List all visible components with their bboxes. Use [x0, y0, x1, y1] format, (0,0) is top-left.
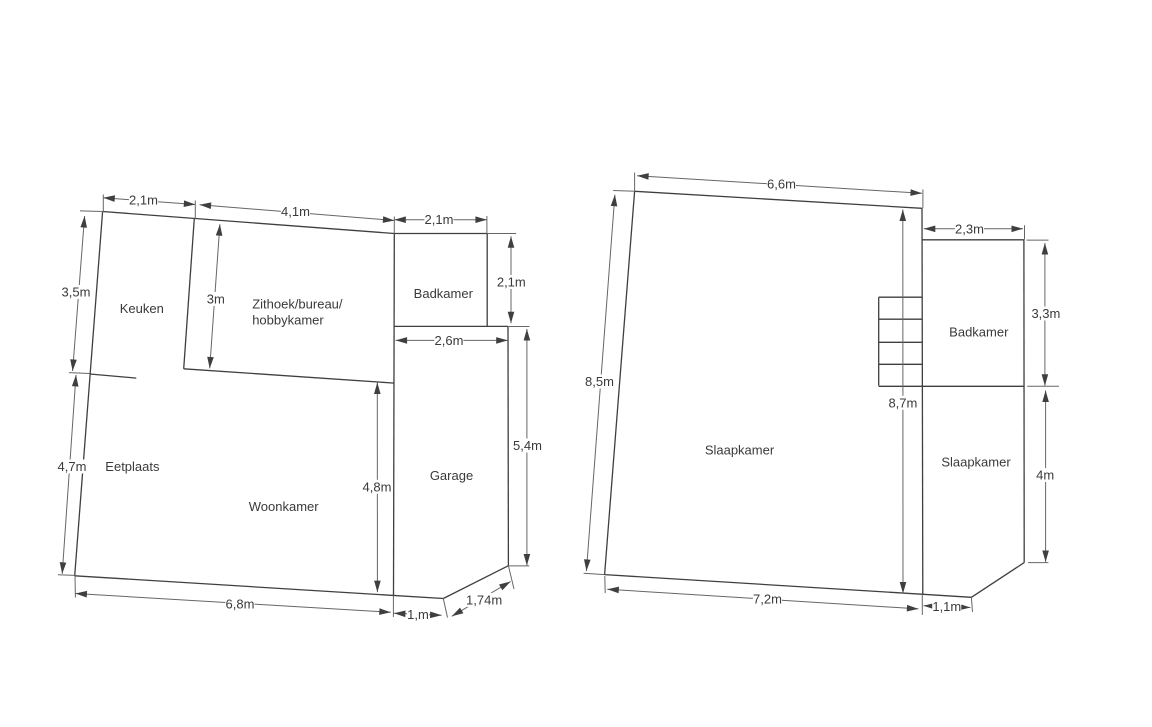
svg-text:Garage: Garage	[430, 468, 473, 483]
svg-text:4,1m: 4,1m	[281, 204, 310, 219]
svg-text:3m: 3m	[207, 292, 225, 307]
svg-text:1,74m: 1,74m	[466, 592, 502, 607]
svg-text:Slaapkamer: Slaapkamer	[941, 455, 1011, 470]
svg-text:4m: 4m	[1036, 468, 1054, 483]
svg-text:Slaapkamer: Slaapkamer	[705, 443, 775, 458]
svg-text:6,6m: 6,6m	[767, 177, 796, 192]
svg-text:Woonkamer: Woonkamer	[249, 499, 320, 514]
svg-text:Zithoek/bureau/: Zithoek/bureau/	[252, 297, 343, 312]
svg-text:8,7m: 8,7m	[888, 395, 917, 410]
svg-text:Eetplaats: Eetplaats	[105, 459, 160, 474]
svg-text:2,1m: 2,1m	[497, 275, 526, 290]
svg-text:2,1m: 2,1m	[129, 193, 158, 208]
svg-text:1,1m: 1,1m	[932, 599, 961, 614]
svg-text:hobbykamer: hobbykamer	[252, 313, 324, 328]
svg-text:Badkamer: Badkamer	[414, 286, 474, 301]
svg-text:7,2m: 7,2m	[753, 592, 782, 607]
svg-text:4,7m: 4,7m	[58, 459, 87, 474]
svg-text:8,5m: 8,5m	[585, 374, 614, 389]
svg-text:6,8m: 6,8m	[226, 596, 255, 611]
svg-text:2,3m: 2,3m	[955, 221, 984, 236]
svg-text:Keuken: Keuken	[120, 301, 164, 316]
svg-text:3,3m: 3,3m	[1031, 306, 1060, 321]
svg-text:2,6m: 2,6m	[435, 333, 464, 348]
svg-text:Badkamer: Badkamer	[949, 325, 1009, 340]
svg-text:5,4m: 5,4m	[513, 438, 542, 453]
svg-text:2,1m: 2,1m	[425, 212, 454, 227]
svg-text:4,8m: 4,8m	[363, 479, 392, 494]
svg-text:3,5m: 3,5m	[62, 285, 91, 300]
svg-text:1,m: 1,m	[407, 607, 429, 622]
